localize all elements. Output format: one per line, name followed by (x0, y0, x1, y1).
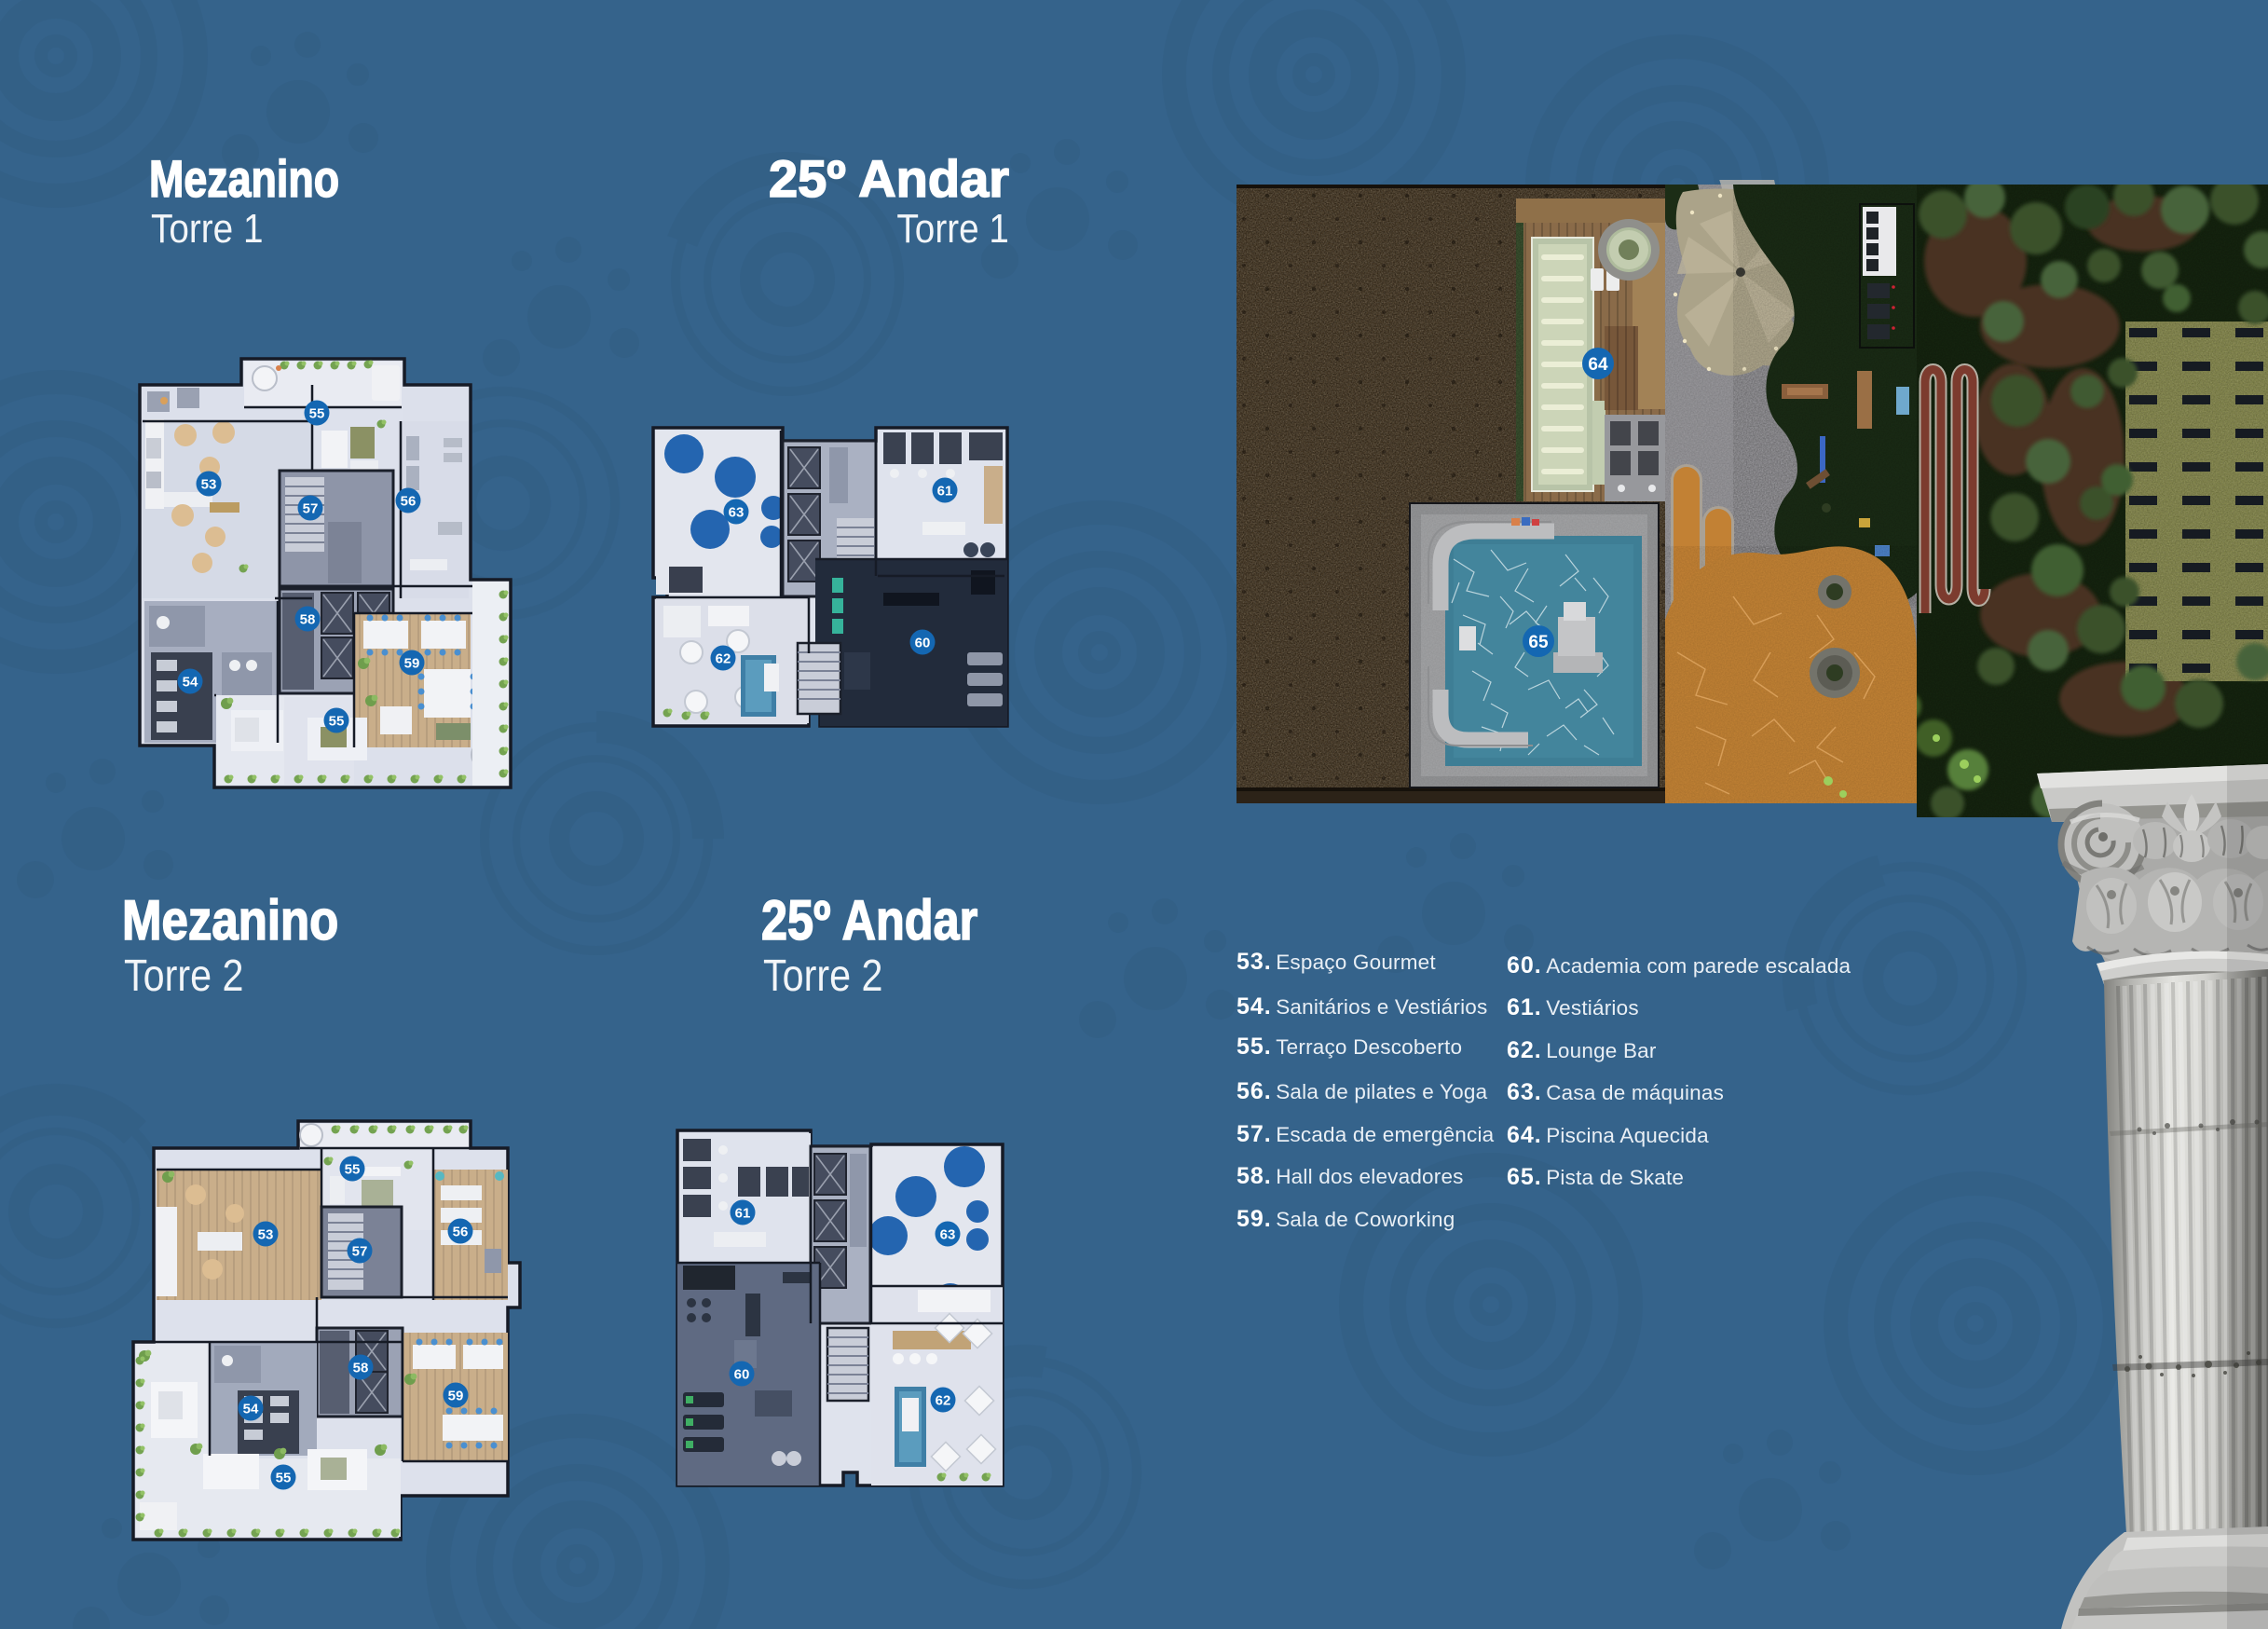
svg-text:55: 55 (345, 1162, 361, 1178)
svg-text:57: 57 (352, 1244, 368, 1260)
svg-text:62: 62 (716, 651, 731, 667)
svg-text:54: 54 (183, 675, 198, 691)
svg-text:55: 55 (276, 1471, 292, 1486)
svg-text:58: 58 (353, 1361, 369, 1376)
svg-text:56: 56 (401, 494, 417, 510)
svg-text:59: 59 (448, 1389, 464, 1404)
svg-text:53: 53 (258, 1227, 274, 1243)
svg-text:61: 61 (937, 484, 953, 500)
svg-text:62: 62 (936, 1393, 951, 1409)
svg-text:59: 59 (404, 656, 420, 672)
svg-text:65: 65 (1528, 633, 1549, 652)
svg-text:56: 56 (453, 1225, 469, 1240)
svg-text:58: 58 (300, 612, 316, 628)
svg-text:64: 64 (1588, 355, 1608, 375)
svg-text:63: 63 (729, 505, 745, 521)
svg-text:63: 63 (940, 1227, 956, 1243)
svg-text:54: 54 (243, 1402, 259, 1417)
svg-text:55: 55 (309, 406, 325, 422)
svg-text:53: 53 (201, 477, 217, 493)
svg-text:60: 60 (734, 1367, 750, 1383)
svg-text:60: 60 (915, 636, 931, 651)
svg-text:55: 55 (329, 714, 345, 730)
svg-text:61: 61 (735, 1206, 751, 1222)
svg-text:57: 57 (303, 501, 319, 517)
